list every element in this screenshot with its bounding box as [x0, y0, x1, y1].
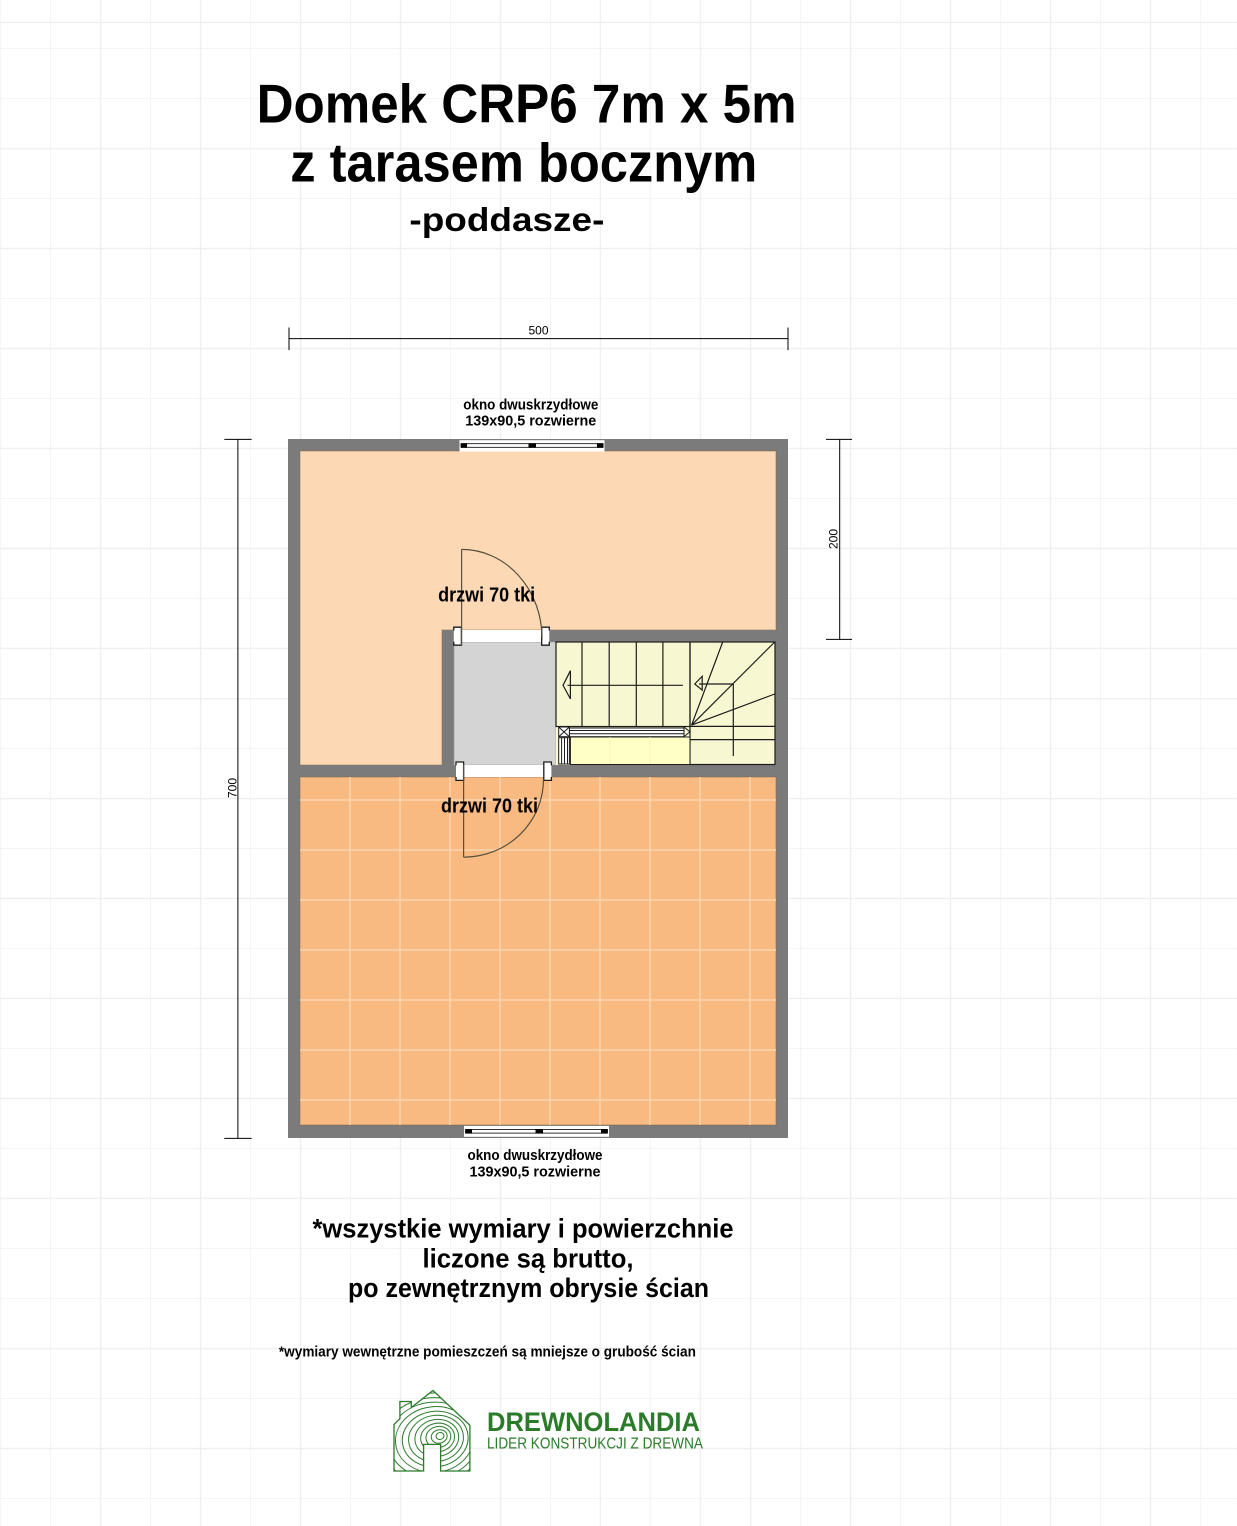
svg-text:-poddasze-: -poddasze- — [409, 201, 604, 238]
svg-text:139x90,5 rozwierne: 139x90,5 rozwierne — [470, 1163, 601, 1180]
svg-text:po zewnętrznym obrysie ścian: po zewnętrznym obrysie ścian — [348, 1273, 709, 1303]
svg-text:500: 500 — [529, 324, 549, 338]
svg-text:liczone są brutto,: liczone są brutto, — [423, 1243, 634, 1273]
svg-text:700: 700 — [226, 778, 240, 798]
svg-text:LIDER KONSTRUKCJI Z DREWNA: LIDER KONSTRUKCJI Z DREWNA — [487, 1436, 704, 1453]
svg-text:Domek CRP6 7m x 5m: Domek CRP6 7m x 5m — [257, 72, 797, 134]
svg-text:okno dwuskrzydłowe: okno dwuskrzydłowe — [463, 396, 598, 413]
svg-text:*wymiary wewnętrzne pomieszcze: *wymiary wewnętrzne pomieszczeń są mniej… — [279, 1344, 696, 1361]
svg-text:DREWNOLANDIA: DREWNOLANDIA — [487, 1407, 700, 1437]
svg-text:*wszystkie wymiary i powierzch: *wszystkie wymiary i powierzchnie — [313, 1214, 734, 1244]
svg-text:okno dwuskrzydłowe: okno dwuskrzydłowe — [468, 1147, 603, 1164]
svg-text:139x90,5 rozwierne: 139x90,5 rozwierne — [465, 412, 596, 429]
svg-text:drzwi 70 tki: drzwi 70 tki — [441, 795, 538, 817]
svg-text:200: 200 — [827, 529, 841, 549]
svg-text:drzwi 70 tki: drzwi 70 tki — [438, 585, 535, 607]
svg-text:z tarasem bocznym: z tarasem bocznym — [290, 131, 757, 193]
